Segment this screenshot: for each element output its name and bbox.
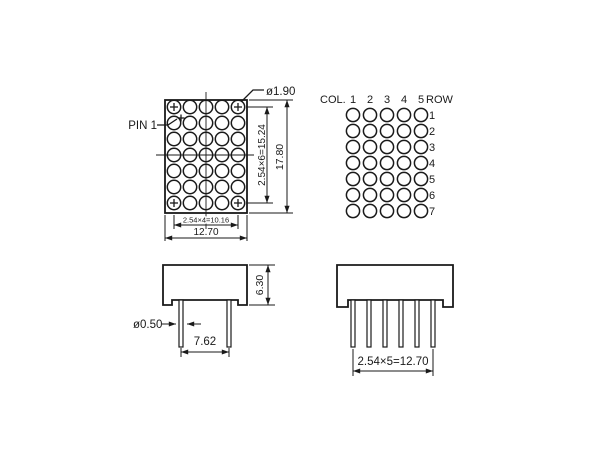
row-numbers: 1234567 — [429, 110, 435, 218]
map-dot — [363, 204, 376, 217]
led-dot — [183, 100, 196, 113]
map-dot — [414, 204, 427, 217]
row-number: 1 — [429, 110, 435, 122]
dim-body-height: 6.30 — [249, 265, 275, 305]
row-number: 6 — [429, 190, 435, 202]
col-number: 5 — [418, 94, 424, 106]
row-number: 4 — [429, 158, 435, 170]
map-dot — [397, 188, 410, 201]
map-dot — [414, 124, 427, 137]
map-dot — [414, 172, 427, 185]
dim-pin-pitch-label: 2.54×5=12.70 — [358, 356, 429, 368]
row-number: 3 — [429, 142, 435, 154]
led-dot — [231, 180, 244, 193]
map-dot — [414, 108, 427, 121]
led-dot — [183, 132, 196, 145]
map-dot-grid — [346, 108, 427, 217]
map-dot — [397, 204, 410, 217]
dim-overall-height-label: 17.80 — [274, 144, 286, 170]
col-number: 2 — [367, 94, 373, 106]
front-view: PIN 1 ø1.90 2.54×6=15.24 17.80 — [128, 86, 295, 241]
dim-pin-diameter-label: ø0.50 — [133, 319, 162, 331]
col-header-label: COL. — [320, 94, 346, 106]
led-dot — [215, 164, 228, 177]
map-dot — [363, 108, 376, 121]
map-dot — [397, 172, 410, 185]
map-dot — [380, 124, 393, 137]
led-dot — [231, 132, 244, 145]
side-view-side: 2.54×5=12.70 — [337, 265, 453, 376]
lead-pin — [227, 300, 231, 347]
hole-diameter-callout: ø1.90 — [242, 86, 295, 101]
dim-overall-width-label: 12.70 — [193, 227, 218, 238]
side-body-outline — [163, 265, 247, 305]
led-dot — [215, 100, 228, 113]
led-dot — [183, 180, 196, 193]
dim-row-pitch-label: 2.54×6=15.24 — [257, 124, 268, 186]
dim-pin-diameter: ø0.50 — [133, 319, 201, 331]
dim-pin-spacing: 7.62 — [181, 336, 229, 357]
map-dot — [397, 124, 410, 137]
lead-pin — [179, 300, 183, 347]
pin1-label: PIN 1 — [128, 120, 157, 132]
lead-pin — [383, 300, 387, 347]
led-dot — [183, 164, 196, 177]
led-dot — [215, 196, 228, 209]
led-dot — [167, 132, 180, 145]
dot-matrix-display-drawing: PIN 1 ø1.90 2.54×6=15.24 17.80 — [0, 0, 600, 450]
led-dot — [183, 196, 196, 209]
map-dot — [380, 204, 393, 217]
lead-pin — [399, 300, 403, 347]
col-number: 1 — [350, 94, 356, 106]
dim-col-pitch-label: 2.54×4=10.16 — [183, 216, 229, 225]
dot-matrix-map: COL. 12345 ROW 1234567 — [320, 94, 454, 218]
map-dot — [414, 156, 427, 169]
map-dot — [346, 108, 359, 121]
led-dot — [231, 164, 244, 177]
map-dot — [346, 188, 359, 201]
map-dot — [346, 140, 359, 153]
map-dot — [363, 124, 376, 137]
map-dot — [380, 140, 393, 153]
side-view-front: 6.30 ø0.50 7.62 — [133, 265, 275, 357]
led-dot — [167, 180, 180, 193]
dim-overall-height: 17.80 — [249, 100, 293, 213]
map-dot — [346, 204, 359, 217]
lead-pin — [431, 300, 435, 347]
col-numbers: 12345 — [350, 94, 424, 106]
led-dot — [215, 180, 228, 193]
map-dot — [346, 172, 359, 185]
dim-pin-pitch: 2.54×5=12.70 — [353, 349, 433, 376]
map-dot — [380, 108, 393, 121]
led-dot — [167, 164, 180, 177]
map-dot — [380, 172, 393, 185]
led-dot — [215, 132, 228, 145]
map-dot — [414, 188, 427, 201]
led-dot — [215, 116, 228, 129]
dim-pin-spacing-label: 7.62 — [194, 336, 216, 348]
dim-body-height-label: 6.30 — [254, 275, 266, 296]
hole-diameter-label: ø1.90 — [266, 86, 295, 98]
map-dot — [380, 188, 393, 201]
row-number: 2 — [429, 126, 435, 138]
map-dot — [397, 156, 410, 169]
technical-drawing-page: PIN 1 ø1.90 2.54×6=15.24 17.80 — [0, 0, 600, 450]
map-dot — [363, 140, 376, 153]
lead-pin — [415, 300, 419, 347]
map-dot — [363, 156, 376, 169]
row-number: 7 — [429, 206, 435, 218]
lead-pin — [351, 300, 355, 347]
map-dot — [346, 124, 359, 137]
row-header-label: ROW — [426, 94, 454, 106]
map-dot — [363, 188, 376, 201]
lead-pin — [367, 300, 371, 347]
col-number: 3 — [384, 94, 390, 106]
led-dot — [231, 116, 244, 129]
map-dot — [346, 156, 359, 169]
map-dot — [397, 108, 410, 121]
row-number: 5 — [429, 174, 435, 186]
map-dot — [363, 172, 376, 185]
map-dot — [380, 156, 393, 169]
map-dot — [397, 140, 410, 153]
map-dot — [414, 140, 427, 153]
col-number: 4 — [401, 94, 407, 106]
led-dot — [183, 116, 196, 129]
